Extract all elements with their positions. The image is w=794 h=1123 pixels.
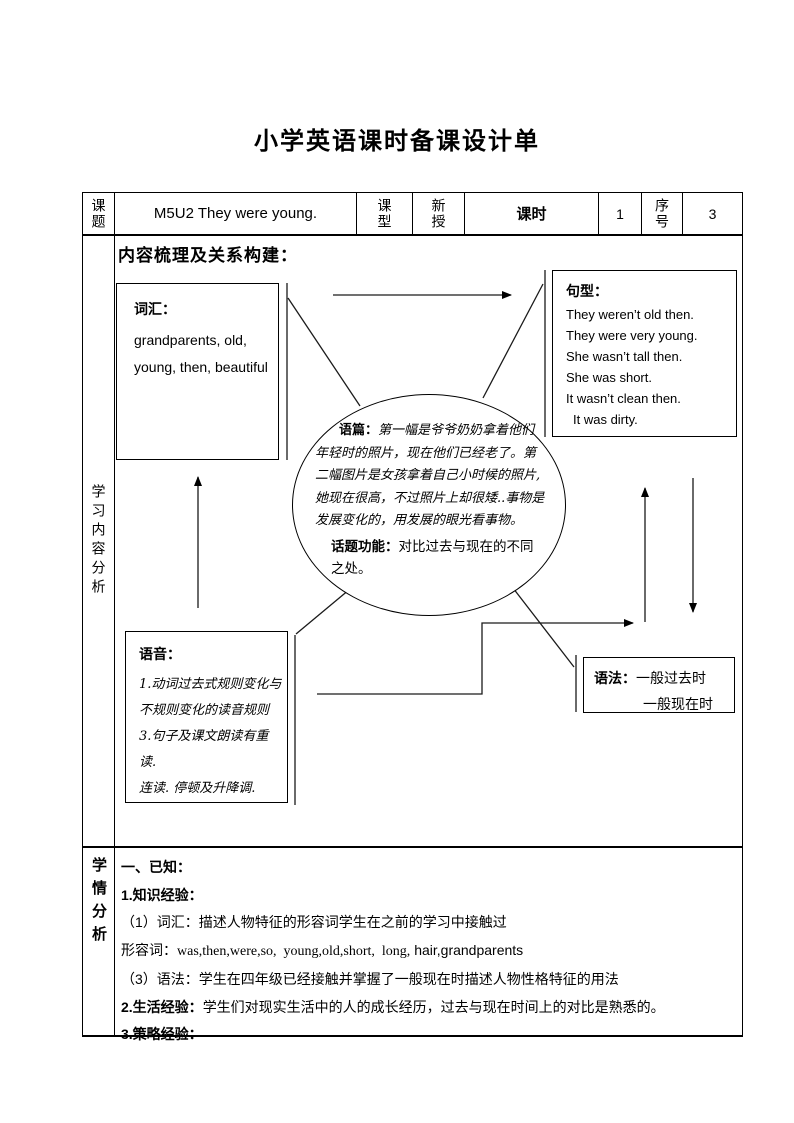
serial-label: 序号 [652, 198, 672, 230]
grammar-line-1: 语法：一般过去时 [594, 665, 734, 691]
content-analysis-row-label: 学习内容分析 [89, 484, 109, 598]
life-experience-line: 2.生活经验：学生们对现实生活中的人的成长经历，过去与现在时间上的对比是熟悉的。 [121, 994, 735, 1022]
knowledge-experience-heading: 1.知识经验： [121, 882, 735, 910]
strategy-experience-heading: 3.策略经验： [121, 1021, 735, 1049]
learner-analysis-content: 一、已知： 1.知识经验： （1）词汇：描述人物特征的形容词学生在之前的学习中接… [114, 847, 743, 1049]
vocab-line: young, then, beautiful [134, 354, 272, 381]
type-label: 课型 [375, 198, 395, 230]
sentence-line: It was dirty. [566, 409, 732, 430]
vocab-label: 词汇： [134, 299, 272, 319]
sentence-line: They weren’t old then. [566, 304, 732, 325]
header-cell-period-label: 课时 [464, 192, 599, 235]
header-cell-type-value: 新授 [412, 192, 465, 235]
grammar-tense-present: 一般现在时 [643, 696, 713, 712]
subject-label: 课题 [89, 198, 109, 230]
header-cell-serial-label: 序号 [641, 192, 683, 235]
learner-analysis-row-label: 学情分析 [88, 857, 109, 949]
vocab-line: grandparents, old, [134, 327, 272, 354]
serial-value: 3 [709, 206, 717, 222]
passage-ellipse: 语篇：第一幅是爷爷奶奶拿着他们年轻时的照片，现在他们已经老了。第二幅图片是女孩拿… [292, 394, 566, 616]
vocab-experience-line: （1）词汇：描述人物特征的形容词学生在之前的学习中接触过 [121, 909, 735, 937]
header-cell-type-label: 课型 [356, 192, 413, 235]
adjectives-label: 形容词： [121, 942, 177, 958]
passage-paragraph: 语篇：第一幅是爷爷奶奶拿着他们年轻时的照片，现在他们已经老了。第二幅图片是女孩拿… [315, 419, 545, 532]
adjectives-line: 形容词：was,then,were,so, young,old,short, l… [121, 937, 735, 966]
phonics-line: 连读. 停顿及升降调. [139, 776, 283, 802]
sentence-line: She was short. [566, 367, 732, 388]
sentence-line: She wasn’t tall then. [566, 346, 732, 367]
sentence-patterns-label: 句型： [566, 281, 732, 301]
phonics-line: 3.句子及课文朗读有重读. [139, 724, 283, 776]
grammar-line-2: 一般现在时 [594, 691, 734, 717]
life-experience-text: 学生们对现实生活中的人的成长经历，过去与现在时间上的对比是熟悉的。 [203, 999, 665, 1015]
grammar-tense-past: 一般过去时 [636, 670, 706, 686]
grammar-label: 语法： [594, 670, 636, 686]
period-label: 课时 [516, 203, 546, 224]
passage-label: 语篇： [339, 422, 378, 437]
mindmap-heading: 内容梳理及关系构建： [118, 241, 298, 266]
phonics-line: 不规则变化的读音规则 [139, 698, 283, 724]
phonics-line: 1.动词过去式规则变化与 [139, 672, 283, 698]
phonics-box: 语音： 1.动词过去式规则变化与 不规则变化的读音规则 3.句子及课文朗读有重读… [125, 631, 288, 803]
sentence-line: It wasn’t clean then. [566, 388, 732, 409]
period-value: 1 [616, 206, 624, 222]
known-heading: 一、已知： [121, 854, 735, 882]
passage-text: 第一幅是爷爷奶奶拿着他们年轻时的照片，现在他们已经老了。第二幅图片是女孩拿着自己… [315, 423, 544, 528]
grammar-experience-line: （3）语法：学生在四年级已经接触并掌握了一般现在时描述人物性格特征的用法 [121, 966, 735, 994]
vocab-box: 词汇： grandparents, old, young, then, beau… [116, 283, 279, 460]
header-cell-subject-label: 课题 [82, 192, 115, 235]
lesson-title: M5U2 They were young. [154, 205, 317, 222]
grammar-box: 语法：一般过去时 一般现在时 [583, 657, 735, 713]
row-label-cell-content-analysis: 学习内容分析 [82, 235, 115, 847]
header-cell-period-value: 1 [598, 192, 642, 235]
phonics-label: 语音： [139, 644, 283, 664]
header-cell-serial-value: 3 [682, 192, 743, 235]
sentence-patterns-box: 句型： They weren’t old then. They were ver… [552, 270, 737, 437]
adjectives-words-serif: was,then,were,so, young,old,short, long, [177, 944, 410, 959]
topic-function-paragraph: 话题功能：对比过去与现在的不同之处。 [315, 536, 545, 580]
page-title: 小学英语课时备课设计单 [0, 121, 794, 156]
sentence-line: They were very young. [566, 325, 732, 346]
page: { "page": { "title": "小学英语课时备课设计单" }, "h… [0, 0, 794, 1123]
adjectives-words-sans: hair,grandparents [410, 942, 523, 958]
header-cell-subject-value: M5U2 They were young. [114, 192, 357, 235]
topic-function-label: 话题功能： [331, 539, 399, 554]
life-experience-label: 2.生活经验： [121, 999, 203, 1015]
type-value: 新授 [429, 198, 449, 230]
row-label-cell-learner-analysis: 学情分析 [82, 847, 115, 1037]
